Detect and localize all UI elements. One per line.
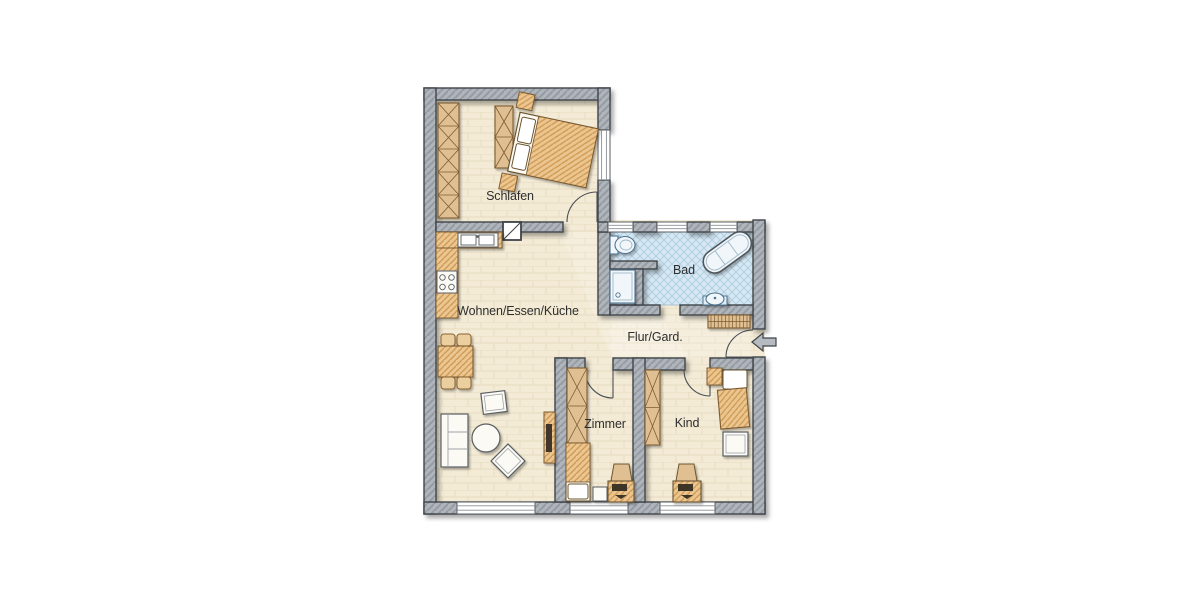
nightstand (516, 92, 535, 111)
room-label-bad: Bad (673, 263, 695, 277)
floor-plan-canvas: Schlafen Bad Wohnen/Essen/Küche Flur/Gar… (0, 0, 1200, 600)
wardrobe-kind (645, 370, 660, 445)
wall-bad-partition-v (635, 269, 643, 305)
tv-sideboard (544, 412, 555, 463)
hall-wardrobe (708, 315, 750, 328)
wall-bad-top-seg3 (687, 222, 710, 232)
window-kind (660, 502, 715, 514)
wardrobe-schlafen-left (438, 103, 459, 218)
window-bad-3 (710, 222, 737, 232)
play-table-kind (723, 432, 748, 456)
wall-bad-bottom-left (610, 305, 660, 315)
room-label-wohnen: Wohnen/Essen/Küche (457, 304, 579, 318)
floor-plan-page: Schlafen Bad Wohnen/Essen/Küche Flur/Gar… (0, 0, 1200, 600)
wall-bad-left (598, 232, 610, 315)
desk-chair (676, 464, 697, 481)
shaft-symbol (503, 222, 521, 240)
wall-right-lower (753, 357, 765, 514)
wall-bad-partition-h (610, 261, 657, 269)
room-label-zimmer: Zimmer (584, 417, 626, 431)
window-bad-1 (608, 222, 633, 232)
nightstand-zimmer (593, 487, 607, 501)
window-schlafen (598, 130, 610, 180)
room-label-flur: Flur/Gard. (627, 330, 682, 344)
room-label-schlafen: Schlafen (486, 189, 534, 203)
wall-rooms-top-seg2 (613, 358, 685, 370)
wall-schlafen-bottom (436, 222, 563, 232)
toilet (610, 236, 635, 254)
single-bed-zimmer (566, 443, 590, 501)
shower (610, 270, 635, 303)
wall-bad-bottom-right (680, 305, 753, 315)
room-label-kind: Kind (675, 416, 700, 430)
desk-chair (611, 464, 632, 481)
coffee-table (472, 424, 500, 452)
wall-schlafen-right-upper (598, 88, 610, 130)
window-wohnen (457, 502, 535, 514)
wall-right-upper (753, 220, 765, 329)
wall-top (424, 88, 610, 100)
window-zimmer (570, 502, 628, 514)
wall-left (424, 88, 436, 514)
stove (437, 271, 457, 293)
kitchen-sink (458, 233, 498, 247)
wall-zimmer-left (555, 358, 567, 502)
wardrobe-zimmer (567, 368, 587, 444)
wall-zimmer-kind (633, 358, 645, 502)
wall-bad-top-seg2 (633, 222, 657, 232)
window-bad-2 (657, 222, 687, 232)
wall-bad-top-seg1 (598, 222, 608, 232)
side-table (481, 391, 507, 415)
dining-table (438, 334, 473, 389)
sofa (441, 414, 468, 467)
